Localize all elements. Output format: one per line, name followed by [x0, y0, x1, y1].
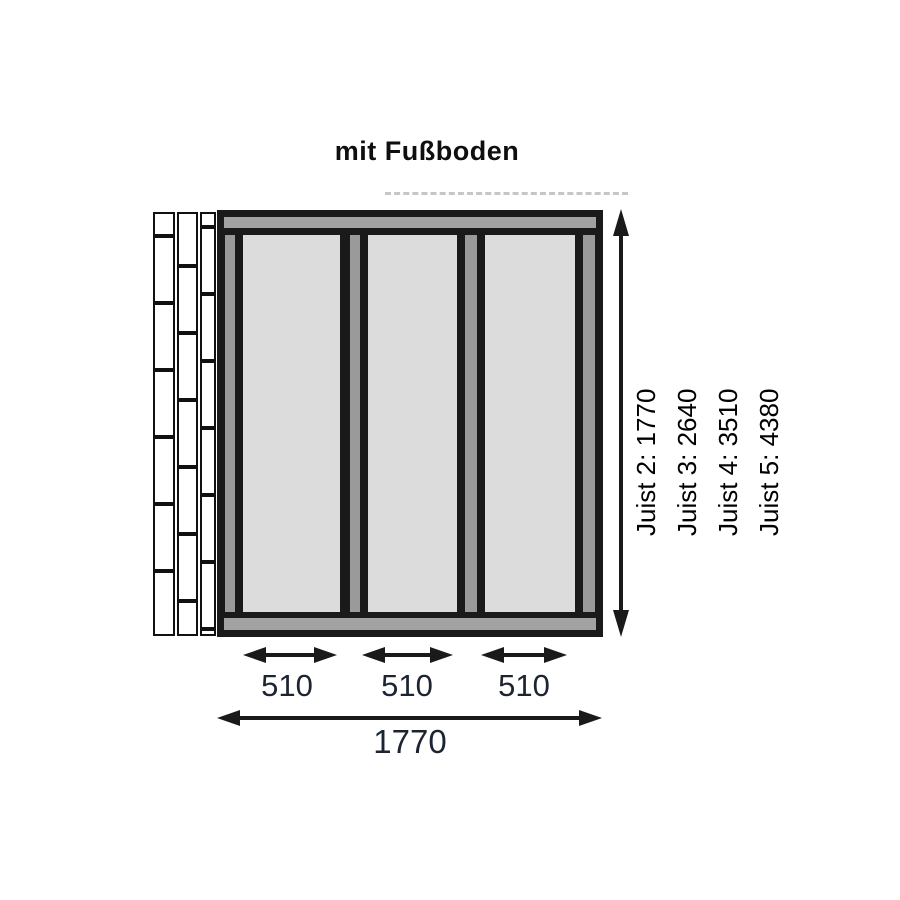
arrowhead-left-icon — [362, 647, 385, 663]
board-joint — [155, 502, 173, 506]
arrow-line — [619, 228, 623, 618]
floor-frame — [217, 210, 603, 637]
joist-size-list: Juist 2: 1770 Juist 3: 2640 Juist 4: 351… — [626, 324, 790, 536]
arrow-line — [500, 653, 548, 657]
joist-size-line: Juist 3: 2640 — [667, 324, 708, 536]
wall-boards-column-1 — [153, 212, 175, 636]
top-rim-beam — [224, 217, 596, 228]
board-joint — [155, 301, 173, 305]
joist-stud-3 — [465, 235, 477, 612]
board-joint — [202, 225, 214, 229]
board-joint — [155, 569, 173, 573]
diagram-title: mit Fußboden — [227, 136, 627, 167]
board-joint — [202, 560, 214, 564]
floor-panel-3 — [485, 235, 575, 612]
arrowhead-left-icon — [243, 647, 266, 663]
joist-size-line: Juist 5: 4380 — [749, 324, 790, 536]
board-joint — [179, 398, 196, 402]
arrow-line — [381, 653, 434, 657]
board-joint — [155, 368, 173, 372]
wall-boards-column-3 — [200, 212, 216, 636]
board-joint — [155, 435, 173, 439]
joist-size-line: Juist 4: 3510 — [708, 324, 749, 536]
joist-stud-4 — [583, 235, 595, 612]
segment-dimension-label-1: 510 — [237, 670, 337, 701]
joist-stud-2 — [350, 235, 360, 612]
board-joint — [202, 627, 214, 631]
total-dimension-label: 1770 — [335, 725, 485, 758]
arrowhead-right-icon — [430, 647, 453, 663]
board-joint — [179, 264, 196, 268]
board-joint — [179, 465, 196, 469]
board-joint — [155, 234, 173, 238]
board-joint — [179, 331, 196, 335]
arrow-line — [262, 653, 318, 657]
arrowhead-up-icon — [613, 209, 629, 236]
dashed-guide-line — [385, 192, 628, 195]
board-joint — [179, 599, 196, 603]
floor-panel-2 — [368, 235, 457, 612]
arrowhead-left-icon — [481, 647, 504, 663]
bottom-rim-beam — [224, 618, 596, 630]
arrowhead-right-icon — [579, 710, 602, 726]
board-joint — [179, 532, 196, 536]
joist-size-line: Juist 2: 1770 — [626, 324, 667, 536]
arrowhead-left-icon — [217, 710, 240, 726]
segment-dimension-label-3: 510 — [474, 670, 574, 701]
arrowhead-down-icon — [613, 610, 629, 637]
arrowhead-right-icon — [544, 647, 567, 663]
wall-boards-column-2 — [177, 212, 198, 636]
floor-panel-1 — [243, 235, 340, 612]
board-joint — [202, 292, 214, 296]
board-joint — [202, 359, 214, 363]
joist-stud-1 — [225, 235, 235, 612]
board-joint — [202, 493, 214, 497]
board-joint — [202, 426, 214, 430]
segment-dimension-label-2: 510 — [357, 670, 457, 701]
arrow-line — [237, 716, 583, 720]
diagram-canvas: mit Fußboden Juist 2: 1770 Juist 3: 2640… — [0, 0, 900, 900]
arrowhead-right-icon — [314, 647, 337, 663]
